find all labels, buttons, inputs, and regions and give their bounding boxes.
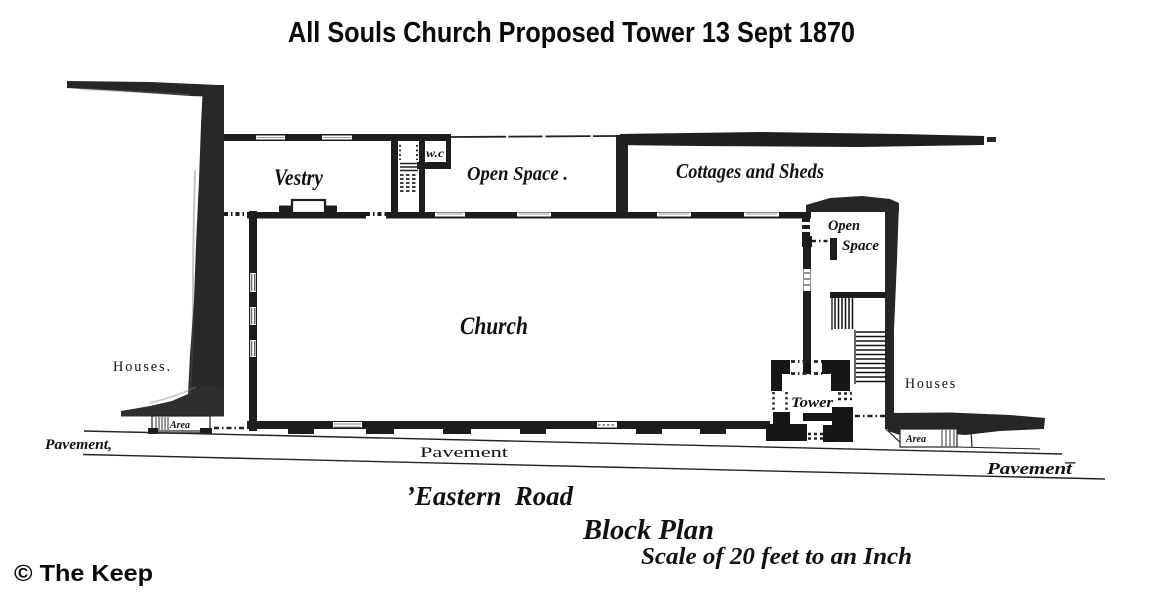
svg-text:w.c: w.c <box>426 146 445 160</box>
svg-text:All Souls Church Proposed Towe: All Souls Church Proposed Tower 13 Sept … <box>288 17 855 49</box>
svg-text:Area: Area <box>905 434 926 445</box>
svg-text:Scale of 20 feet to an Inch: Scale of 20 feet to an Inch <box>641 544 912 570</box>
svg-text:Pavement: Pavement <box>420 445 509 461</box>
svg-text:’Eastern Road: ’Eastern Road <box>406 481 573 511</box>
svg-text:Open Space .: Open Space . <box>467 163 568 185</box>
svg-text:© The Keep: © The Keep <box>14 560 153 586</box>
svg-text:Houses.: Houses. <box>113 359 172 375</box>
svg-text:Block Plan: Block Plan <box>582 515 714 546</box>
svg-text:Open: Open <box>828 218 860 234</box>
svg-text:Pavement̅: Pavement̅ <box>986 459 1077 478</box>
svg-text:Houses: Houses <box>905 376 957 392</box>
svg-text:Cottages and Sheds: Cottages and Sheds <box>676 159 824 183</box>
svg-text:Pavement,: Pavement, <box>45 437 112 453</box>
svg-text:Vestry: Vestry <box>274 165 324 190</box>
svg-text:Area: Area <box>169 420 190 431</box>
svg-text:Tower: Tower <box>791 395 833 411</box>
svg-text:Space: Space <box>842 238 879 254</box>
svg-text:Church: Church <box>460 313 528 340</box>
